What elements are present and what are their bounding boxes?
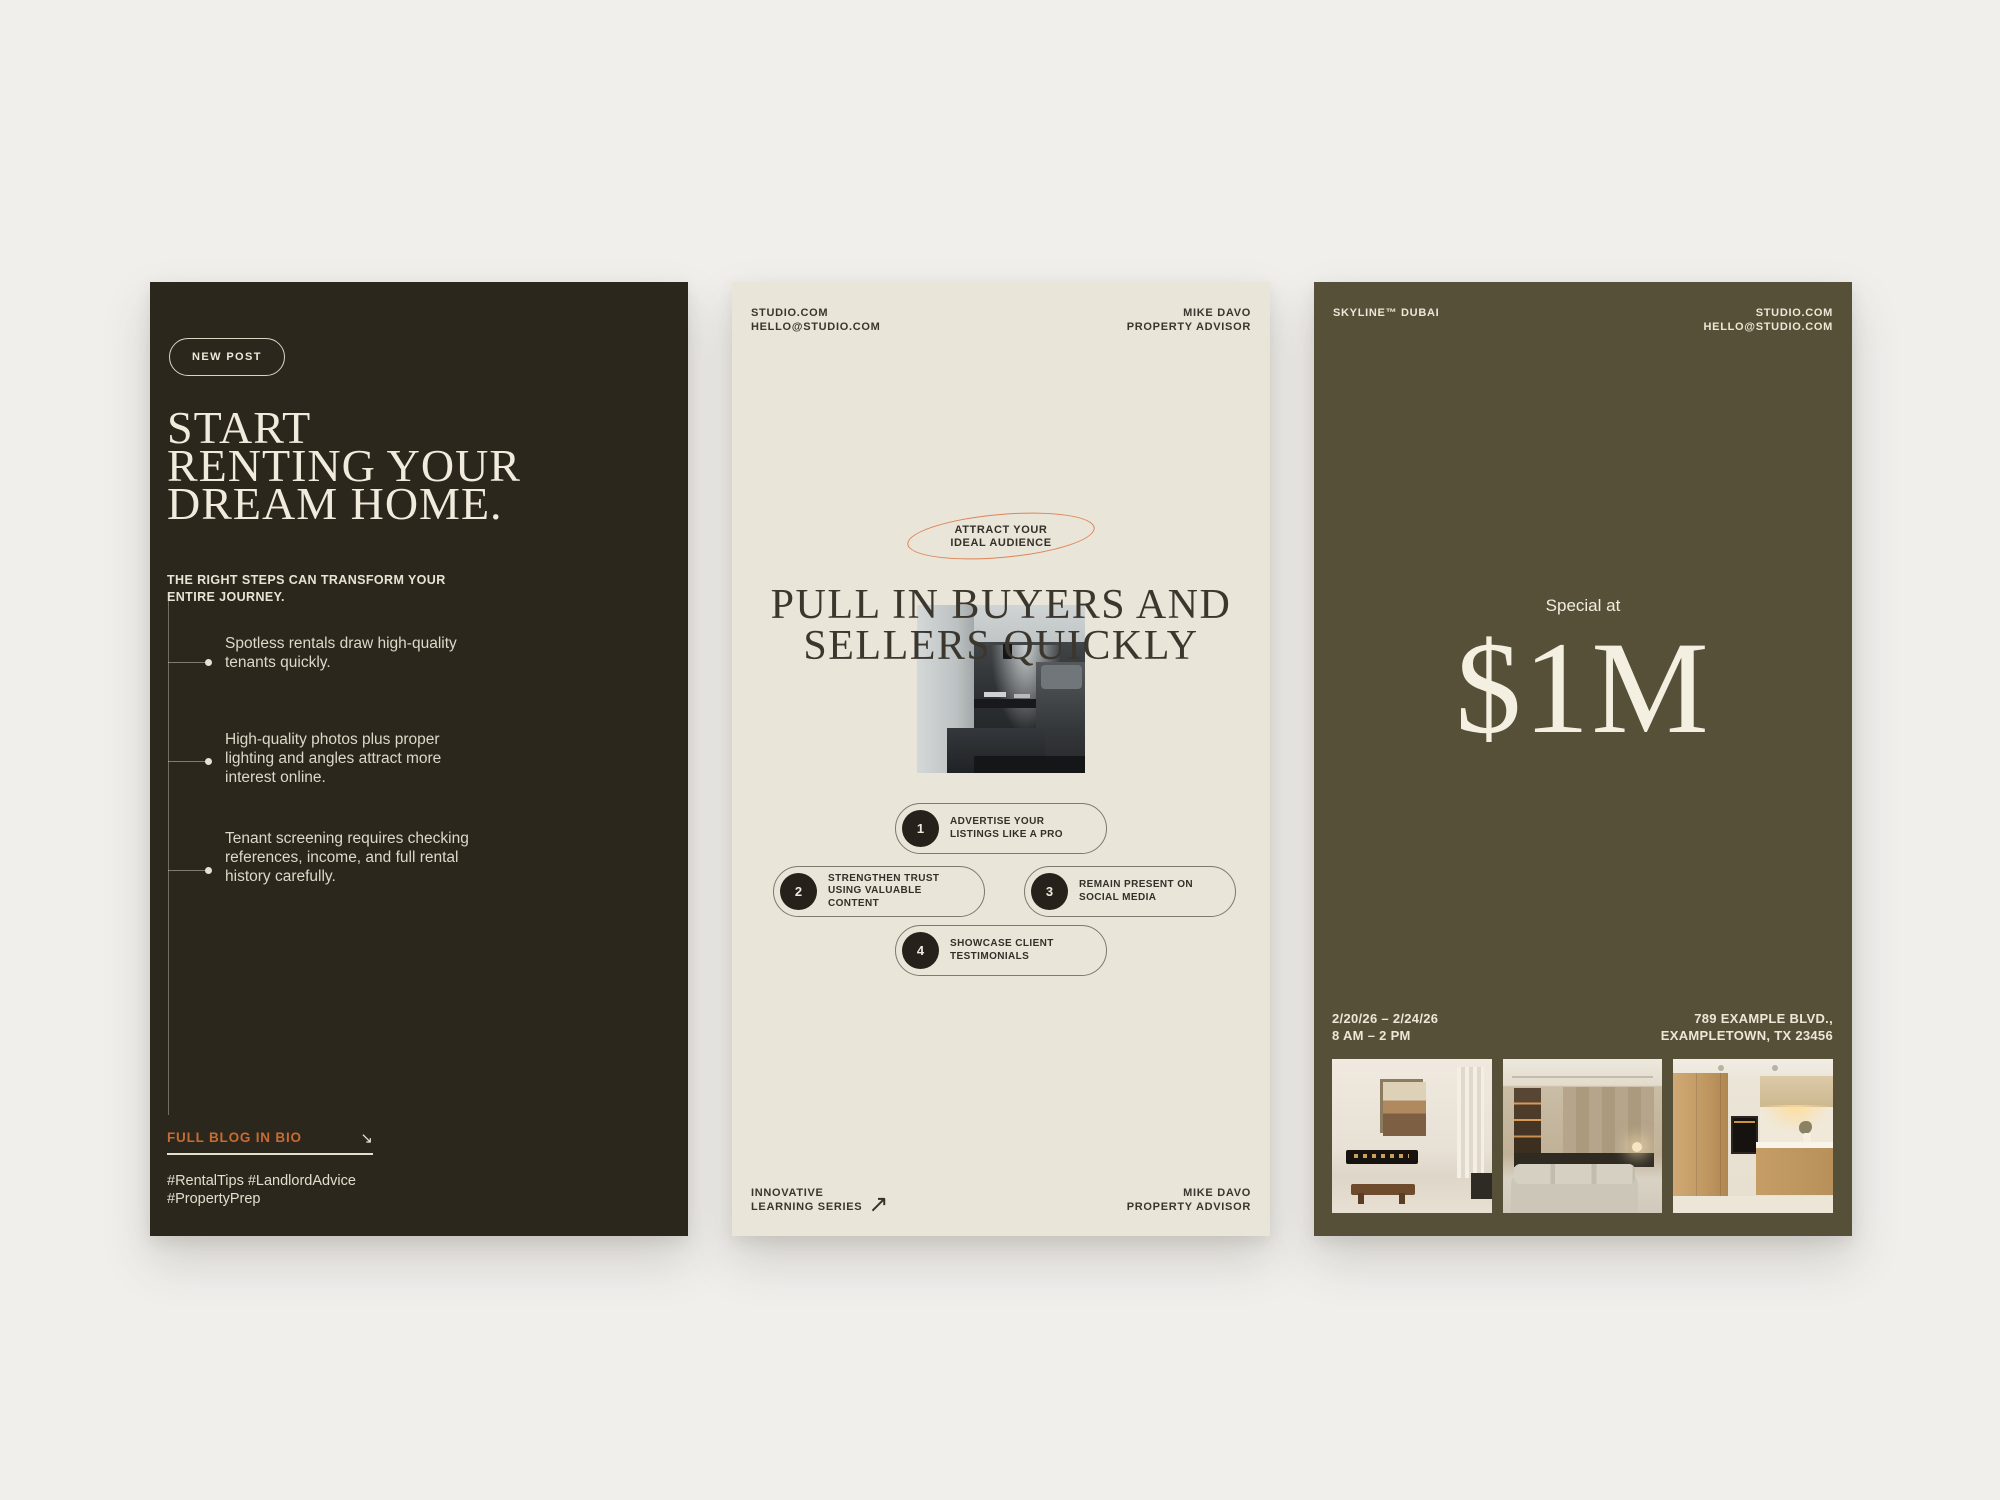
step-pill-2: 2 STRENGTHEN TRUST USING VALUABLE CONTEN…	[773, 866, 985, 917]
design-canvas: NEW POST START RENTING YOUR DREAM HOME. …	[0, 0, 2000, 1500]
event-dates: 2/20/26 – 2/24/26 8 AM – 2 PM	[1332, 1010, 1438, 1044]
hashtag-line: #RentalTips #LandlordAdvice	[167, 1172, 356, 1190]
hashtag-line: #PropertyPrep	[167, 1190, 356, 1208]
series-text: INNOVATIVE LEARNING SERIES	[751, 1186, 862, 1214]
connector-line	[168, 662, 206, 663]
event-info-row: 2/20/26 – 2/24/26 8 AM – 2 PM 789 EXAMPL…	[1332, 1010, 1833, 1044]
bullet-text: High-quality photos plus proper lighting…	[225, 731, 441, 786]
photo-oven-display	[1734, 1121, 1755, 1123]
step-pill-1: 1 ADVERTISE YOUR LISTINGS LIKE A PRO	[895, 803, 1107, 854]
connector-line	[168, 870, 206, 871]
photo-cushions	[1514, 1164, 1635, 1184]
step-pill-3: 3 REMAIN PRESENT ON SOCIAL MEDIA	[1024, 866, 1236, 917]
step-number-badge: 4	[902, 932, 939, 969]
headline-line: DREAM HOME.	[167, 485, 521, 523]
hashtags: #RentalTips #LandlordAdvice #PropertyPre…	[167, 1172, 356, 1208]
date-range-text: 2/20/26 – 2/24/26	[1332, 1010, 1438, 1027]
photo-under-cabinet-light	[1760, 1105, 1832, 1133]
email-text: HELLO@STUDIO.COM	[1704, 320, 1833, 334]
headline-line: PULL IN BUYERS AND	[732, 585, 1270, 626]
series-line: INNOVATIVE	[751, 1186, 862, 1200]
bullet-dot	[205, 758, 212, 765]
photo-spotlight	[1772, 1065, 1778, 1071]
post-card-buyers-sellers: STUDIO.COM HELLO@STUDIO.COM MIKE DAVO PR…	[732, 282, 1270, 1236]
photo-wall-art	[1380, 1079, 1423, 1133]
advisor-name-text: MIKE DAVO	[1127, 306, 1251, 320]
card2-headline: PULL IN BUYERS AND SELLERS QUICKLY	[732, 585, 1270, 667]
connector-line	[168, 761, 206, 762]
price-value: $1M	[1314, 618, 1852, 758]
advisor-name: MIKE DAVO PROPERTY ADVISOR	[1127, 1186, 1251, 1214]
card2-header: STUDIO.COM HELLO@STUDIO.COM MIKE DAVO PR…	[751, 306, 1251, 334]
advisor-title-text: PROPERTY ADVISOR	[1127, 1200, 1251, 1214]
full-blog-link-label: FULL BLOG IN BIO	[167, 1130, 302, 1145]
photo-floor	[974, 756, 1085, 773]
post-card-rental-tips: NEW POST START RENTING YOUR DREAM HOME. …	[150, 282, 688, 1236]
price-label: Special at	[1314, 596, 1852, 616]
photo-art-canvas	[1383, 1082, 1426, 1136]
photo-table-lamp	[1632, 1142, 1642, 1152]
photo-book	[1014, 694, 1030, 698]
arrow-down-right-icon: ↘	[360, 1133, 373, 1145]
lounge-sofa-photo	[1503, 1059, 1663, 1213]
bullet-dot	[205, 867, 212, 874]
list-item: Tenant screening requires checking refer…	[169, 829, 475, 886]
photo-pillow	[1041, 665, 1081, 689]
advisor-name-text: MIKE DAVO	[1127, 1186, 1251, 1200]
photo-tall-cabinet	[1673, 1073, 1727, 1196]
photo-vase	[1803, 1133, 1811, 1142]
property-photo-strip	[1332, 1059, 1833, 1213]
photo-flames	[1354, 1154, 1408, 1159]
card1-headline: START RENTING YOUR DREAM HOME.	[167, 409, 521, 523]
photo-floor	[1673, 1196, 1833, 1213]
photo-book	[984, 692, 1006, 697]
list-item: High-quality photos plus proper lighting…	[169, 730, 475, 787]
post-card-open-house: SKYLINE™ DUBAI STUDIO.COM HELLO@STUDIO.C…	[1314, 282, 1852, 1236]
photo-shelf	[974, 699, 1045, 708]
arrow-up-right-icon: ↗	[868, 1196, 888, 1214]
photo-spotlight	[1718, 1065, 1724, 1071]
living-room-photo	[1332, 1059, 1492, 1213]
card3-header: SKYLINE™ DUBAI STUDIO.COM HELLO@STUDIO.C…	[1333, 306, 1833, 334]
photo-console	[1471, 1173, 1492, 1199]
photo-curtain	[1457, 1067, 1484, 1178]
event-address: 789 EXAMPLE BLVD., EXAMPLETOWN, TX 23456	[1661, 1010, 1833, 1044]
photo-lower-cabinet	[1756, 1148, 1833, 1194]
card1-subheading: THE RIGHT STEPS CAN TRANSFORM YOUR ENTIR…	[167, 572, 446, 606]
step-number-badge: 2	[780, 873, 817, 910]
bullet-dot	[205, 659, 212, 666]
email-text: HELLO@STUDIO.COM	[751, 320, 880, 334]
step-label: REMAIN PRESENT ON SOCIAL MEDIA	[1079, 879, 1217, 904]
full-blog-link[interactable]: FULL BLOG IN BIO ↘	[167, 1130, 373, 1155]
photo-shelf-niche	[1514, 1088, 1541, 1154]
address-line: EXAMPLETOWN, TX 23456	[1661, 1027, 1833, 1044]
headline-line: SELLERS QUICKLY	[732, 626, 1270, 667]
address-line: 789 EXAMPLE BLVD.,	[1661, 1010, 1833, 1027]
studio-contact: STUDIO.COM HELLO@STUDIO.COM	[751, 306, 880, 334]
step-label: STRENGTHEN TRUST USING VALUABLE CONTENT	[828, 873, 966, 911]
kitchen-photo	[1673, 1059, 1833, 1213]
time-range-text: 8 AM – 2 PM	[1332, 1027, 1438, 1044]
list-item: Spotless rentals draw high-quality tenan…	[169, 634, 475, 672]
website-text: STUDIO.COM	[1704, 306, 1833, 320]
photo-ceiling-line	[1512, 1076, 1653, 1078]
step-label: ADVERTISE YOUR LISTINGS LIKE A PRO	[950, 816, 1088, 841]
bullet-text: Spotless rentals draw high-quality tenan…	[225, 635, 457, 671]
brand-label: SKYLINE™ DUBAI	[1333, 306, 1439, 334]
studio-contact: STUDIO.COM HELLO@STUDIO.COM	[1704, 306, 1833, 334]
series-label: INNOVATIVE LEARNING SERIES ↗	[751, 1186, 888, 1214]
series-line: LEARNING SERIES	[751, 1200, 862, 1214]
photo-table-leg	[1399, 1193, 1405, 1204]
card2-footer: INNOVATIVE LEARNING SERIES ↗ MIKE DAVO P…	[751, 1186, 1251, 1214]
advisor-title-text: PROPERTY ADVISOR	[1127, 320, 1251, 334]
bullet-text: Tenant screening requires checking refer…	[225, 830, 469, 885]
new-post-badge: NEW POST	[169, 338, 285, 376]
subhead-line: THE RIGHT STEPS CAN TRANSFORM YOUR	[167, 572, 446, 589]
step-number-badge: 1	[902, 810, 939, 847]
subhead-line: ENTIRE JOURNEY.	[167, 589, 446, 606]
photo-table-leg	[1358, 1193, 1364, 1204]
photo-upper-cabinet	[1760, 1076, 1833, 1107]
attract-audience-badge: ATTRACT YOUR IDEAL AUDIENCE	[901, 524, 1101, 550]
step-pill-4: 4 SHOWCASE CLIENT TESTIMONIALS	[895, 925, 1107, 976]
website-text: STUDIO.COM	[751, 306, 880, 320]
ellipse-outline-icon	[905, 506, 1096, 566]
step-label: SHOWCASE CLIENT TESTIMONIALS	[950, 938, 1088, 963]
step-number-badge: 3	[1031, 873, 1068, 910]
advisor-name: MIKE DAVO PROPERTY ADVISOR	[1127, 306, 1251, 334]
